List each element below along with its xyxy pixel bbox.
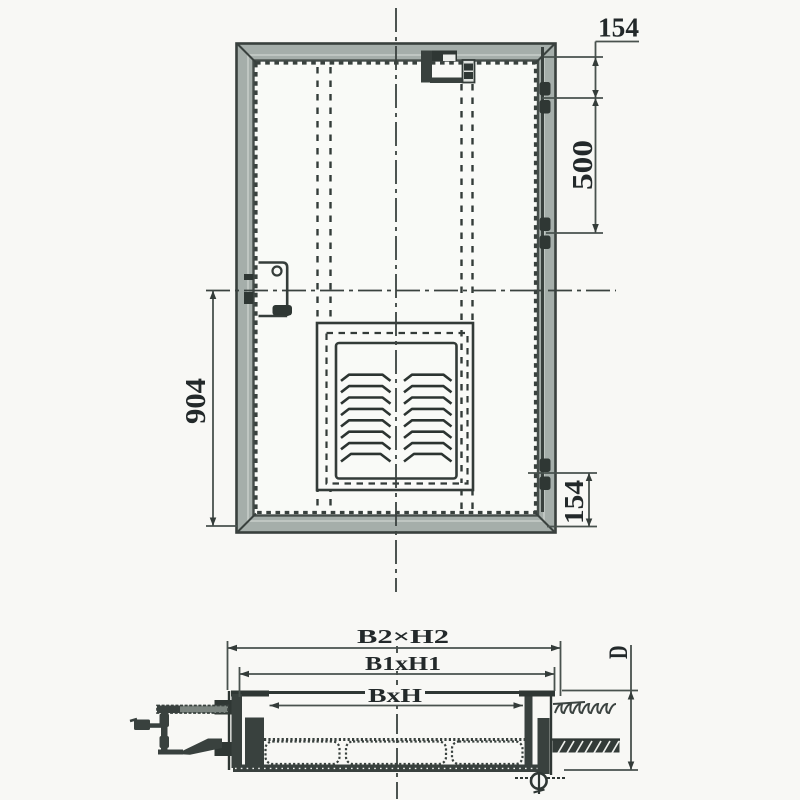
svg-text:500: 500: [568, 140, 599, 190]
svg-text:D: D: [604, 646, 633, 660]
svg-text:154: 154: [559, 480, 589, 524]
svg-text:B2×H2: B2×H2: [357, 626, 449, 648]
svg-text:BxH: BxH: [368, 685, 423, 707]
svg-text:154: 154: [598, 13, 639, 43]
svg-text:904: 904: [181, 378, 212, 424]
svg-text:B1xH1: B1xH1: [365, 653, 441, 675]
